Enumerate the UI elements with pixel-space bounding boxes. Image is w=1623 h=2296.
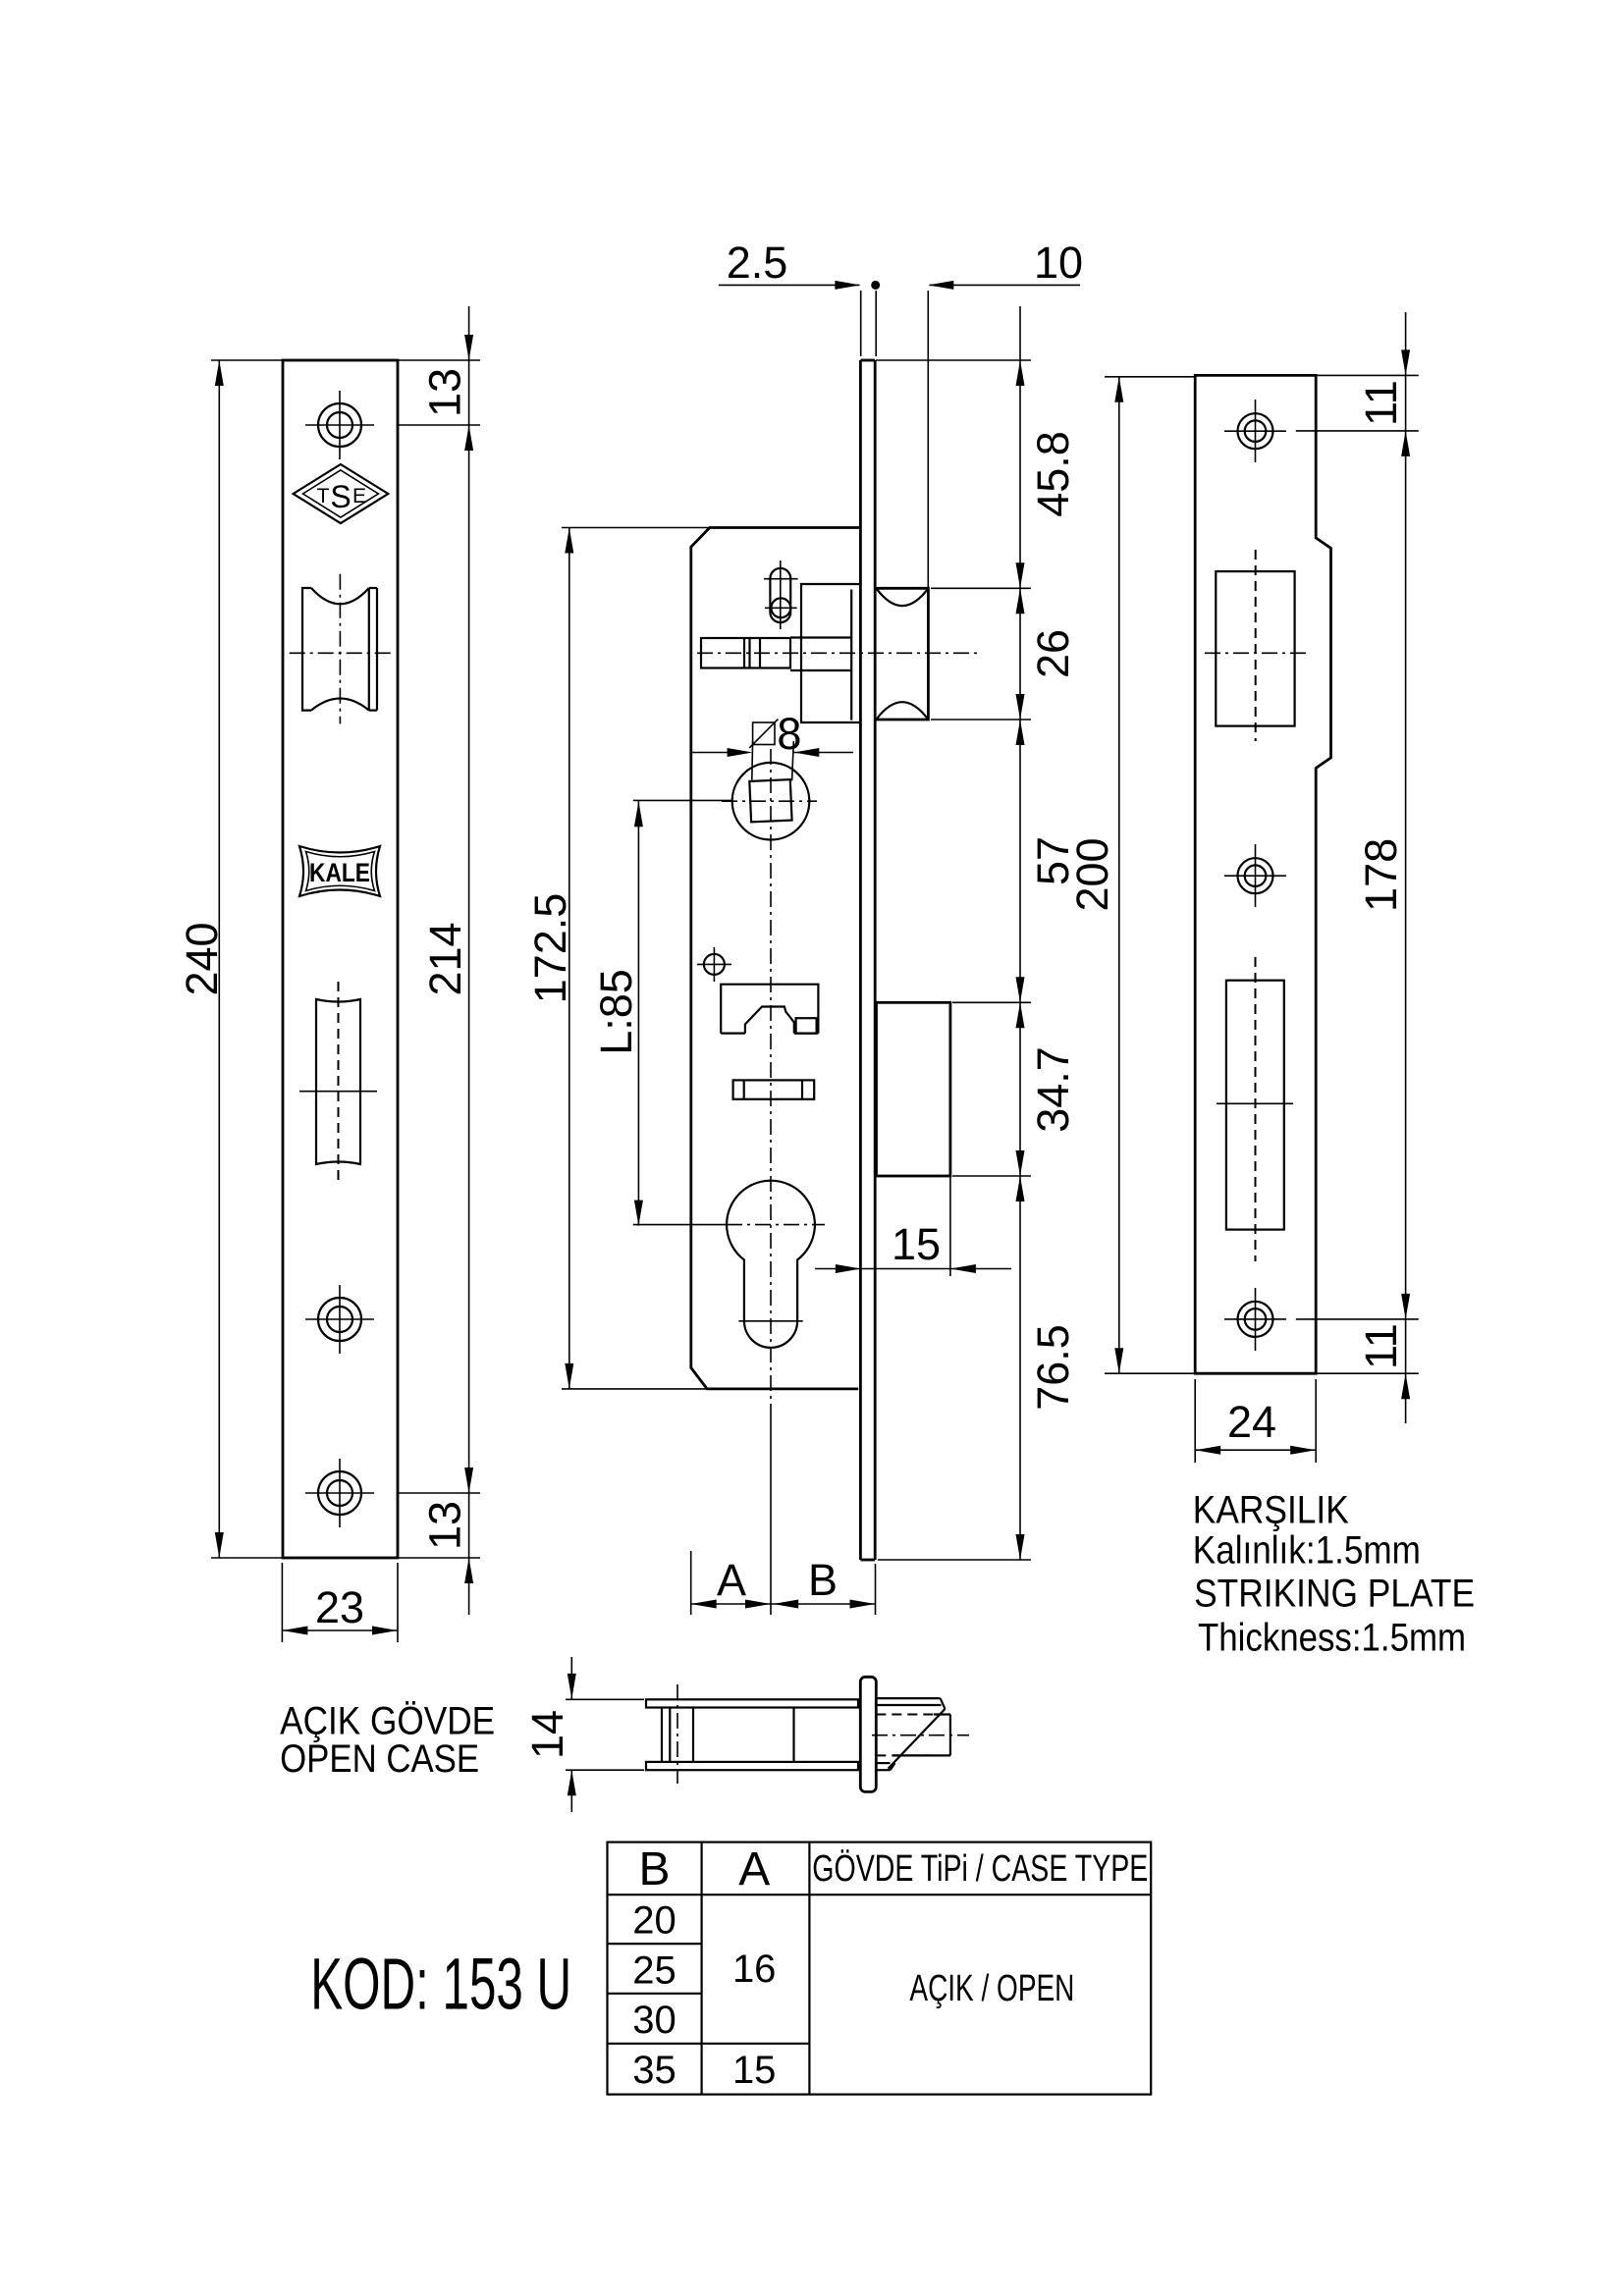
svg-text:2.5: 2.5 — [727, 238, 788, 288]
svg-text:GÖVDE TiPi / CASE TYPE: GÖVDE TiPi / CASE TYPE — [812, 1848, 1148, 1890]
svg-text:16: 16 — [732, 1948, 777, 1991]
svg-text:11: 11 — [1356, 1323, 1406, 1369]
svg-text:26: 26 — [1028, 629, 1078, 678]
svg-text:24: 24 — [1227, 1397, 1276, 1447]
svg-text:A: A — [717, 1555, 746, 1605]
svg-text:214: 214 — [420, 922, 470, 995]
svg-text:L:85: L:85 — [591, 969, 641, 1055]
svg-text:200: 200 — [1067, 837, 1117, 911]
svg-text:20: 20 — [632, 1899, 676, 1943]
svg-text:KALE: KALE — [309, 858, 370, 887]
svg-text:S: S — [330, 479, 351, 514]
svg-text:15: 15 — [892, 1219, 941, 1269]
svg-text:76.5: 76.5 — [1028, 1324, 1078, 1411]
svg-text:35: 35 — [632, 2049, 676, 2092]
svg-text:T: T — [317, 485, 330, 507]
svg-text:172.5: 172.5 — [525, 893, 575, 1004]
svg-text:Thickness:1.5mm: Thickness:1.5mm — [1198, 1616, 1466, 1659]
svg-text:10: 10 — [1034, 238, 1083, 288]
svg-text:14: 14 — [522, 1710, 572, 1759]
svg-text:178: 178 — [1356, 838, 1406, 912]
svg-text:8: 8 — [777, 709, 801, 759]
svg-text:AÇIK / OPEN: AÇIK / OPEN — [909, 1968, 1074, 2009]
svg-text:30: 30 — [632, 1999, 676, 2042]
svg-text:11: 11 — [1356, 380, 1406, 426]
svg-text:25: 25 — [632, 1949, 676, 1992]
svg-text:B: B — [808, 1555, 838, 1605]
svg-text:23: 23 — [315, 1582, 364, 1632]
svg-text:240: 240 — [177, 922, 227, 995]
svg-text:45.8: 45.8 — [1028, 431, 1078, 517]
svg-text:A: A — [738, 1843, 770, 1896]
svg-text:E: E — [352, 485, 366, 507]
svg-text:AÇIK GÖVDE: AÇIK GÖVDE — [280, 1700, 495, 1743]
svg-text:15: 15 — [732, 2049, 777, 2092]
svg-text:13: 13 — [420, 368, 470, 417]
svg-text:13: 13 — [420, 1501, 470, 1550]
svg-text:STRIKING PLATE: STRIKING PLATE — [1194, 1572, 1475, 1615]
svg-text:34.7: 34.7 — [1028, 1046, 1078, 1133]
svg-text:KOD: 153 U: KOD: 153 U — [310, 1943, 571, 2024]
svg-text:KARŞILIK: KARŞILIK — [1193, 1489, 1349, 1532]
svg-text:B: B — [638, 1843, 670, 1896]
svg-text:Kalınlık:1.5mm: Kalınlık:1.5mm — [1193, 1529, 1421, 1573]
svg-text:OPEN CASE: OPEN CASE — [280, 1737, 479, 1781]
